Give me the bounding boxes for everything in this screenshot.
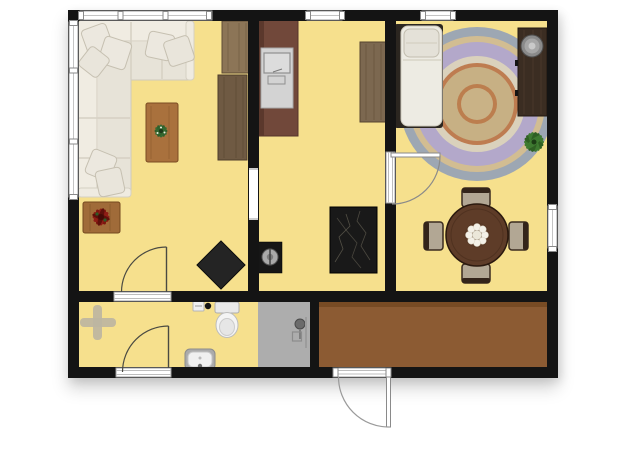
floor-plan-canvas	[0, 0, 624, 468]
bath-exterior-door-sill	[116, 368, 171, 377]
sofa-pillow-7	[95, 167, 126, 198]
balcony-floor	[319, 302, 547, 367]
balcony-door-leaf	[387, 377, 391, 427]
dresser-knob-1	[515, 60, 518, 66]
bedroom-top-window-cap-1	[421, 12, 426, 20]
coffee-plant-dot-2	[164, 132, 166, 134]
red-plant-leaf-2	[103, 218, 106, 221]
living-top-window-cap-1	[79, 12, 84, 20]
wall-shower-balcony	[310, 291, 319, 378]
living-study-opening	[249, 168, 258, 220]
right-window-cap-1	[549, 205, 557, 210]
balcony-door-arc	[339, 377, 389, 427]
marble-table	[330, 207, 377, 273]
balcony-sill-cap-1	[333, 368, 338, 377]
bathroom-cross-v	[93, 305, 102, 340]
bedroom-plant-center	[532, 140, 537, 145]
toilet-seat	[220, 319, 235, 336]
left-window-cap-1	[70, 21, 78, 26]
dresser-knob-2	[515, 90, 518, 96]
bathroom-black-dot	[205, 303, 211, 309]
left-window-cap-4	[70, 195, 78, 200]
left-window-cap-3	[70, 139, 78, 144]
wall-living-study	[248, 10, 259, 302]
living-top-window-cap-3	[163, 12, 168, 20]
coffee-plant-dot-1	[160, 127, 162, 129]
coffee-plant-center	[159, 129, 163, 133]
wall-right	[547, 10, 558, 378]
living-top-window-cap-4	[207, 12, 212, 20]
study-top-window-cap-1	[306, 12, 311, 20]
dining-chair-right-back	[523, 222, 528, 250]
balcony-top-shadow	[319, 302, 547, 307]
bedroom-door-leaf	[391, 153, 440, 157]
shower-head	[295, 319, 305, 329]
desk-monitor	[264, 53, 290, 73]
wardrobe-cabinet-a	[222, 21, 252, 73]
balcony-door-sill	[333, 368, 391, 377]
sink-drain	[199, 357, 202, 360]
red-plant-leaf-1	[95, 212, 98, 215]
living-top-window-cap-2	[118, 12, 123, 20]
shower-floor	[258, 302, 310, 367]
centerpiece-center	[473, 231, 482, 240]
floor-plan-image	[0, 0, 624, 468]
left-window-cap-2	[70, 68, 78, 73]
dining-chair-left-back	[424, 222, 429, 250]
dining-chair-top-back	[462, 188, 490, 193]
living-bath-door-sill	[114, 292, 171, 301]
balcony-sill-cap-2	[386, 368, 391, 377]
red-plant-center	[98, 214, 104, 220]
study-top-window-cap-2	[340, 12, 345, 20]
toilet-tank	[215, 302, 239, 313]
right-window-cap-2	[549, 247, 557, 252]
rug-center	[461, 88, 493, 120]
study-bedroom-door-sill	[386, 152, 395, 203]
desk-keyboard	[268, 76, 285, 84]
bedroom-top-window-cap-2	[451, 12, 456, 20]
coffee-plant-dot-3	[157, 132, 159, 134]
dresser-speaker-center	[529, 43, 536, 50]
dining-chair-bottom-back	[462, 278, 490, 283]
